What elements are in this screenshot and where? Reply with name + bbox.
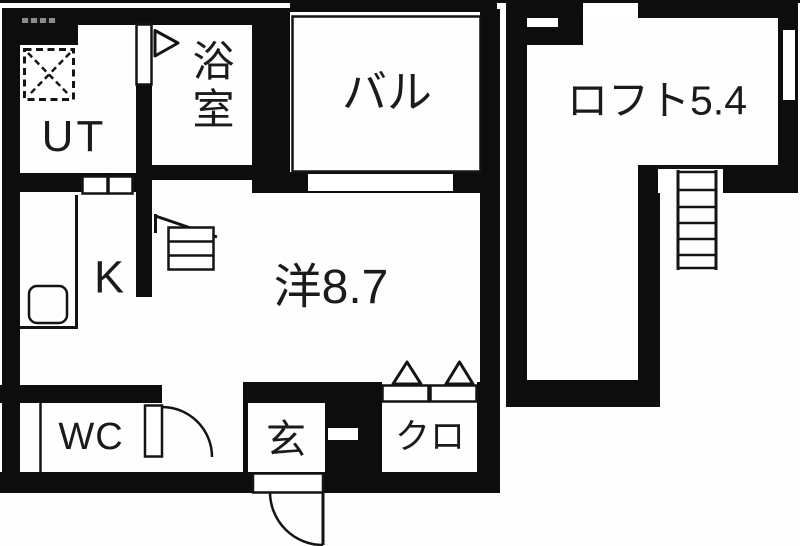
room-label-wc: WC (58, 418, 123, 458)
room-label-bathroom: 浴室 (188, 39, 232, 135)
entrance-door-opening (253, 474, 323, 493)
bathroom-door-leaf (137, 25, 152, 85)
entrance-door-arc (270, 492, 323, 545)
room-label-ut: UT (42, 114, 107, 160)
washing-machine-pan-icon (25, 50, 74, 100)
room-label-kitchen: K (94, 253, 124, 300)
closet-folding-door-icon (383, 362, 477, 402)
room-label-entrance: 玄 (266, 419, 306, 461)
floorplan-canvas: UT 浴室 バル ロフト5.4 K 洋8.7 WC 玄 クロ (0, 0, 800, 546)
ut-door-panels (83, 177, 133, 194)
kitchen-sink-icon (29, 286, 67, 323)
room-label-balcony: バル (342, 68, 432, 115)
wc-door-arc (162, 407, 212, 457)
loft-ladder-icon (658, 168, 723, 271)
room-label-loft: ロフト5.4 (567, 79, 747, 122)
stepladder-icon (156, 214, 218, 270)
bathroom-door-triangle-icon (155, 31, 178, 57)
room-label-western: 洋8.7 (274, 263, 389, 313)
kitchen-counter (20, 195, 78, 328)
room-label-closet: クロ (395, 420, 465, 457)
wc-door-leaf (145, 406, 162, 457)
